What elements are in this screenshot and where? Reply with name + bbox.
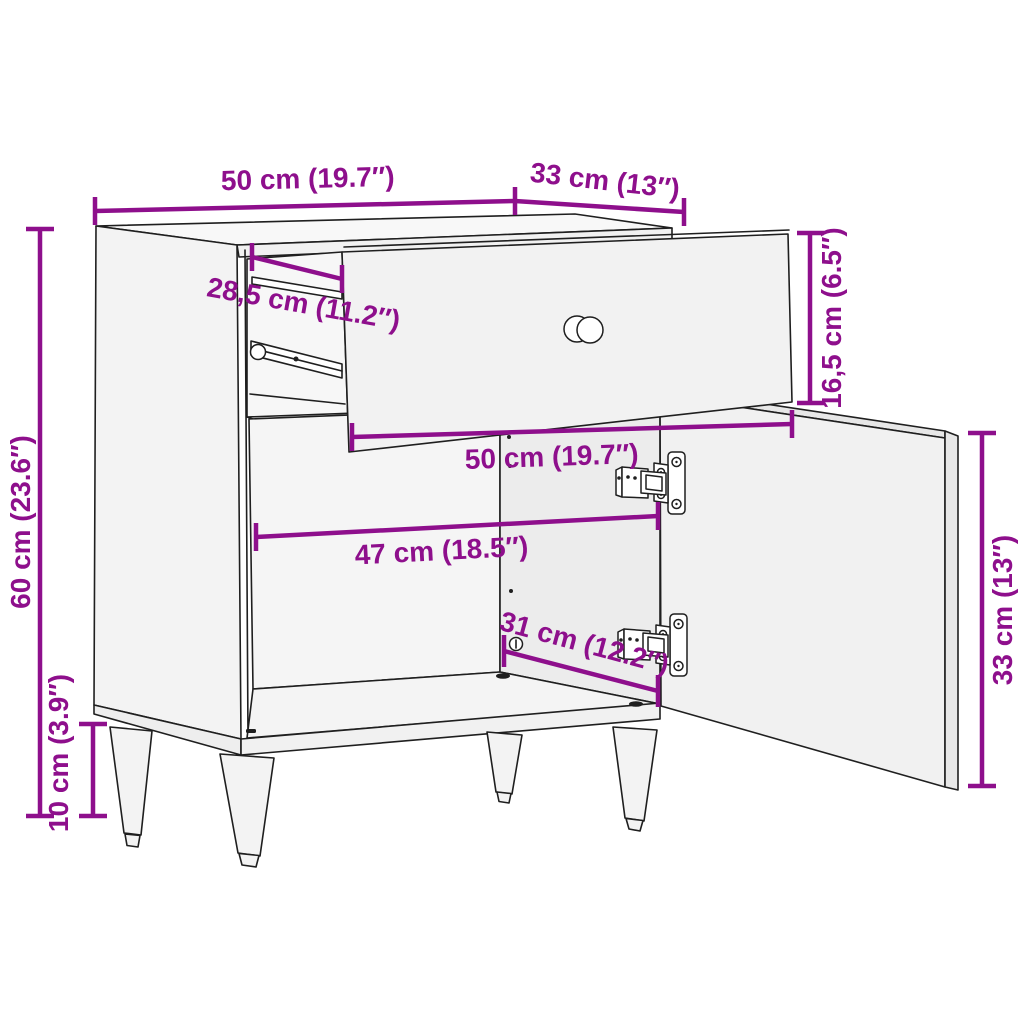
cabinet-leg-front-left: [220, 754, 274, 867]
dim-top-width-label: 50 cm (19.7″): [221, 161, 395, 197]
open-door: [616, 388, 958, 790]
diagram-canvas: 50 cm (19.7″) 33 cm (13″) 28,5 cm (11.2″…: [0, 0, 1024, 1024]
dim-top-depth-label: 33 cm (13″): [529, 157, 682, 205]
slide-roller-icon: [251, 345, 266, 360]
dim-leg-height-label: 10 cm (3.9″): [43, 674, 74, 832]
drawer-knob: [564, 316, 603, 343]
dim-door-height: 33 cm (13″): [968, 433, 1018, 786]
dim-door-height-label: 33 cm (13″): [987, 535, 1018, 685]
floor-screw-left: [496, 673, 510, 679]
cabinet-leg-back-left: [110, 727, 152, 847]
dim-drawer-width-label: 50 cm (19.7″): [464, 438, 639, 475]
furniture-dimension-diagram: 50 cm (19.7″) 33 cm (13″) 28,5 cm (11.2″…: [0, 0, 1024, 1024]
dim-drawer-height: 16,5 cm (6.5″): [797, 227, 847, 409]
cabinet-leg-back-right: [487, 732, 522, 803]
cabinet-leg-front-right: [613, 727, 657, 831]
cam-lock-dash: [246, 729, 256, 733]
dim-top-width: 50 cm (19.7″): [95, 161, 515, 225]
slide-dot: [294, 357, 299, 362]
dim-drawer-height-label: 16,5 cm (6.5″): [816, 227, 847, 409]
door-front-face: [660, 395, 945, 787]
floor-screw-right: [629, 701, 643, 707]
door-edge-strip: [945, 431, 958, 790]
dim-total-height-label: 60 cm (23.6″): [5, 435, 36, 609]
cabinet-legs: [110, 727, 657, 867]
